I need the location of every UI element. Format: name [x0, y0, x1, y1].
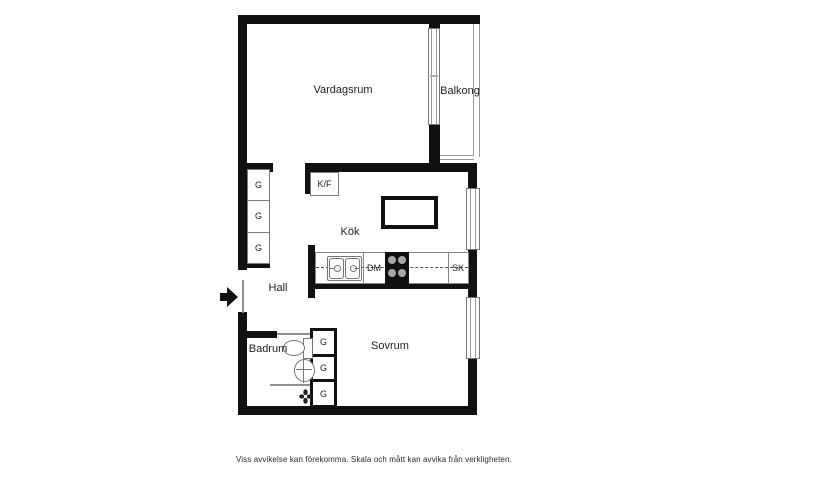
bedroom-wardrobe-3: G [310, 379, 337, 408]
sink-basin-right [345, 258, 360, 279]
balcony-wall-bottom [440, 155, 474, 160]
sink-basin-left [329, 258, 344, 279]
entrance-arrow-icon [220, 286, 239, 308]
bedroom-wardrobe-1-label: G [320, 337, 327, 347]
bedroom-window-icon [466, 297, 480, 359]
wall-bathroom-top [247, 331, 277, 338]
burner-4 [398, 269, 406, 277]
kitchen-sink-icon [327, 256, 362, 281]
bath-sink-cross-h [296, 369, 312, 370]
floorplan-canvas: G G G G G G K/F DM [0, 0, 825, 486]
room-label-kok: Kök [341, 226, 360, 238]
balcony-door-mid-tick [430, 75, 438, 77]
bathroom-door-opening-line [277, 333, 310, 335]
bedroom-wardrobe-2-label: G [320, 363, 327, 373]
wall-counter-left [308, 245, 315, 298]
kitchen-table [381, 196, 438, 229]
hall-wardrobe-3: G [247, 232, 270, 264]
room-label-sovrum: Sovrum [371, 340, 409, 352]
faucet-left-line [330, 268, 334, 269]
bedroom-wardrobe-1: G [310, 328, 337, 357]
bath-sink-icon [294, 359, 315, 382]
room-label-hall: Hall [269, 282, 288, 294]
fridge-freezer-label: K/F [317, 179, 331, 189]
counter-divider-2 [448, 253, 449, 283]
wall-left-lower [238, 312, 247, 415]
hall-wardrobe-column: G G G [247, 169, 270, 264]
wall-left-upper [238, 15, 247, 270]
wall-balconydoor-stub-bottom [429, 122, 440, 168]
hall-wardrobe-1-label: G [255, 180, 262, 190]
kitchen-counter: DM SK [315, 252, 469, 284]
disclaimer-text: Viss avvikelse kan förekomma. Skala och … [236, 455, 512, 464]
faucet-left-icon [334, 265, 341, 272]
entry-door-opening-line [242, 280, 244, 313]
sink-divider [343, 259, 344, 277]
hall-wardrobe-2-label: G [255, 211, 262, 221]
bedroom-window-glass [470, 298, 476, 358]
shower-partition-line [270, 384, 312, 386]
cabinet-label: SK [452, 263, 464, 273]
burner-3 [388, 269, 396, 277]
counter-divider-1 [363, 253, 364, 283]
stove-icon [385, 252, 409, 284]
kitchen-window-glass [470, 189, 476, 249]
room-label-balkong: Balkong [440, 85, 480, 97]
bedroom-wardrobe-3-label: G [320, 389, 327, 399]
room-label-badrum: Badrum [249, 343, 288, 355]
hall-wardrobe-2: G [247, 200, 270, 232]
wall-bottom [238, 406, 477, 415]
dishwasher-label: DM [367, 263, 381, 273]
wall-livingroom-kitchen [305, 163, 477, 172]
kitchen-window-icon [466, 188, 480, 250]
balcony-door-icon [428, 28, 440, 125]
hall-wardrobe-1: G [247, 169, 270, 201]
room-label-vardagsrum: Vardagsrum [313, 84, 372, 96]
burner-2 [398, 256, 406, 264]
shower-drain-icon [299, 389, 312, 404]
faucet-right-line [355, 268, 359, 269]
wall-top [238, 15, 480, 24]
burner-1 [388, 256, 396, 264]
hall-wardrobe-3-label: G [255, 243, 262, 253]
fridge-freezer-box: K/F [310, 172, 339, 196]
